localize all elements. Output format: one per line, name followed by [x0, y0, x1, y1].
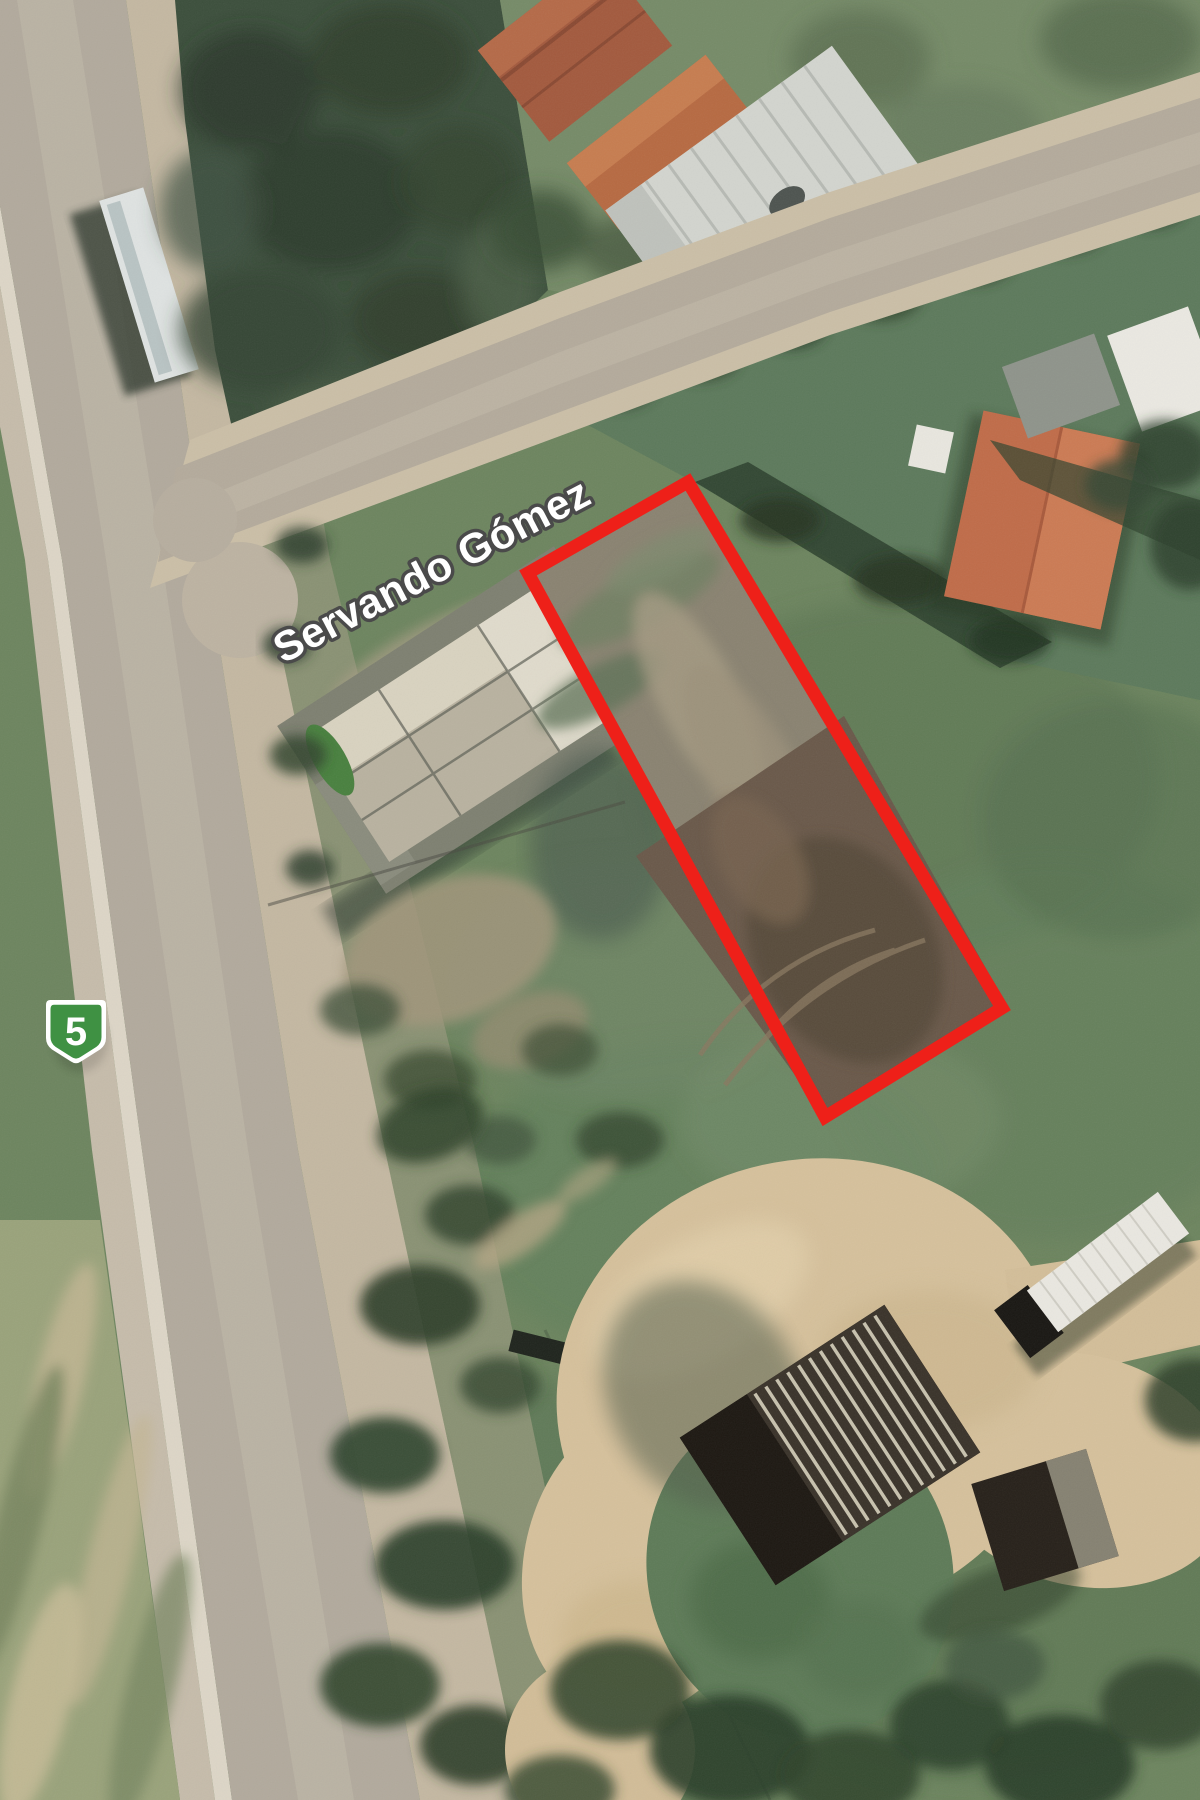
satellite-noise-texture	[0, 0, 1200, 1800]
shield-number: 5	[65, 1010, 87, 1054]
satellite-map-canvas[interactable]: Servando Gómez 5	[0, 0, 1200, 1800]
satellite-imagery: Servando Gómez 5	[0, 0, 1200, 1800]
